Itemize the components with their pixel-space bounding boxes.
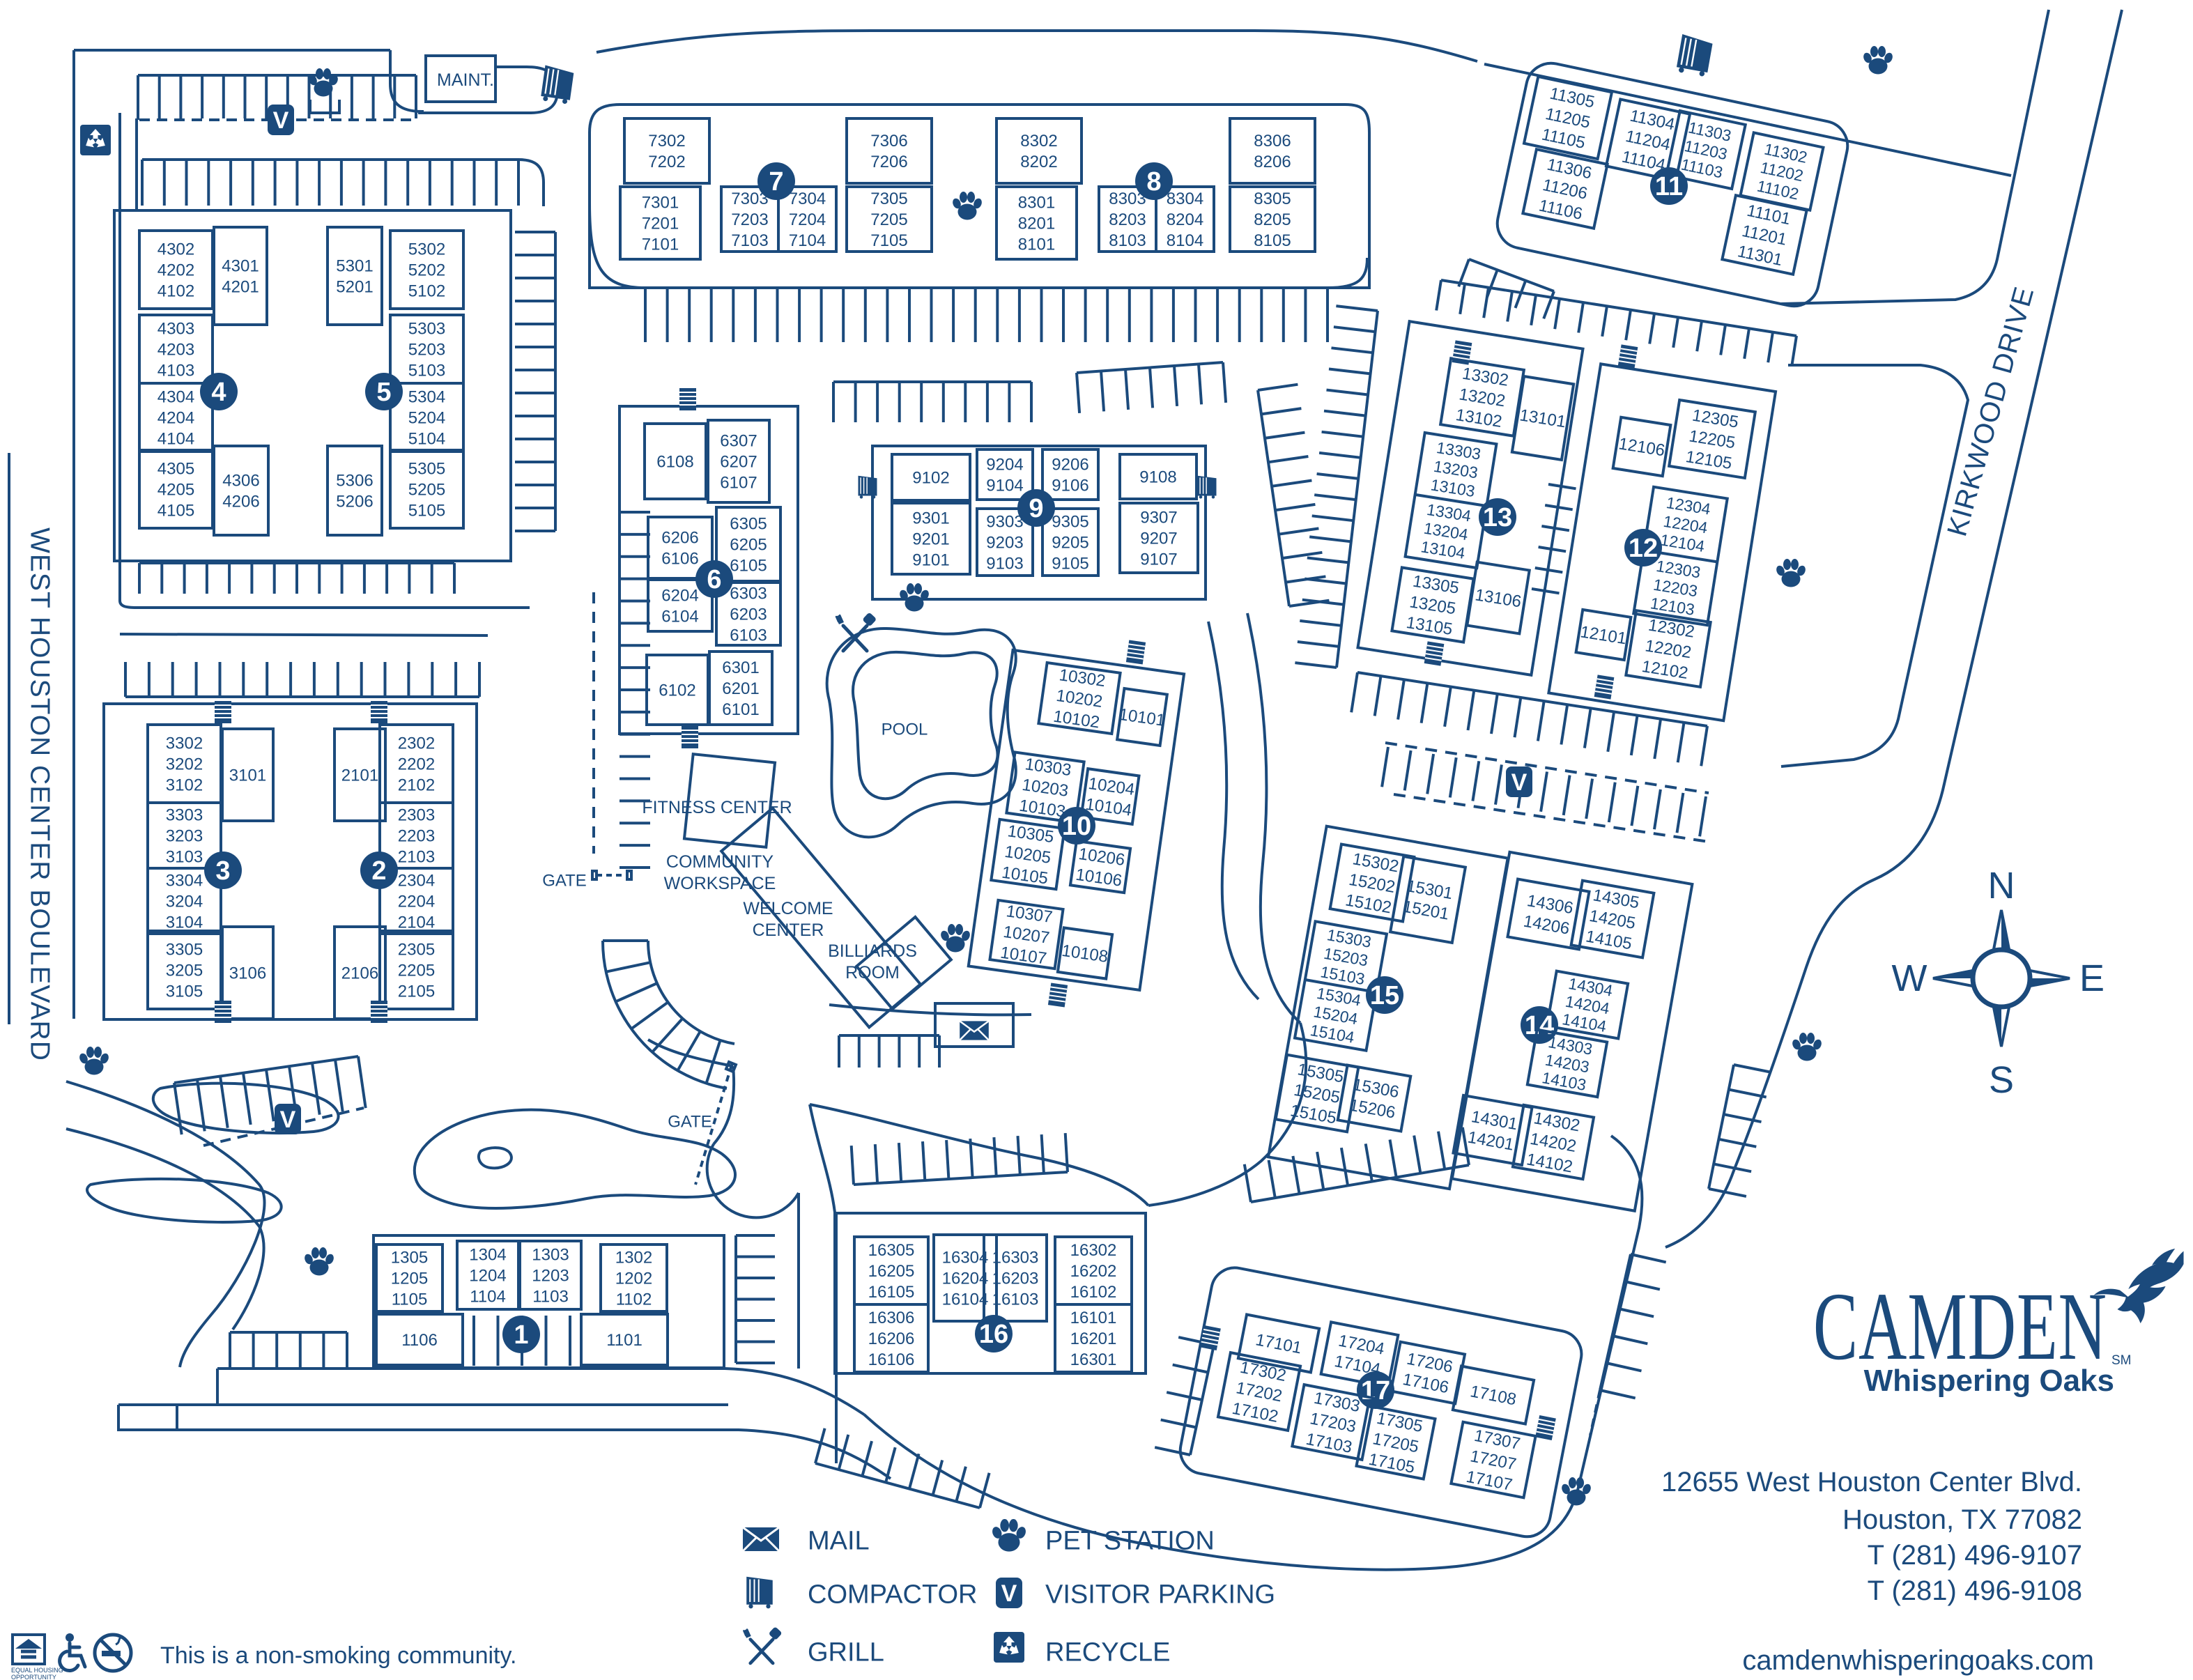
svg-text:330332033103: 330332033103 [166, 806, 203, 866]
svg-text:9108: 9108 [1139, 468, 1176, 486]
svg-text:WEST HOUSTON CENTER BOULEVARD: WEST HOUSTON CENTER BOULEVARD [24, 527, 54, 1061]
svg-text:123051220512105: 123051220512105 [1684, 406, 1740, 473]
svg-text:123021220212102: 123021220212102 [1640, 616, 1696, 683]
svg-text:330232023102: 330232023102 [166, 734, 203, 794]
svg-text:9: 9 [1029, 494, 1043, 523]
svg-text:2101: 2101 [341, 766, 378, 785]
svg-text:103021020210102: 103021020210102 [1052, 665, 1107, 732]
svg-text:7: 7 [769, 167, 783, 196]
svg-text:163061620616106: 163061620616106 [868, 1309, 915, 1369]
svg-text:13: 13 [1483, 503, 1512, 532]
svg-text:VISITOR PARKING: VISITOR PARKING [1045, 1580, 1275, 1609]
svg-text:430242024102: 430242024102 [157, 240, 194, 300]
svg-text:730572057105: 730572057105 [870, 190, 907, 250]
svg-text:163041620416104: 163041620416104 [942, 1248, 989, 1309]
svg-text:530552055105: 530552055105 [408, 459, 445, 520]
svg-text:930392039103: 930392039103 [986, 512, 1023, 573]
svg-text:16: 16 [979, 1320, 1008, 1349]
svg-text:9102: 9102 [912, 468, 949, 487]
svg-text:630762076107: 630762076107 [720, 431, 757, 492]
svg-text:V: V [273, 107, 289, 134]
svg-text:930192019101: 930192019101 [912, 509, 949, 569]
svg-text:S: S [1989, 1059, 2014, 1101]
svg-text:2106: 2106 [341, 964, 378, 982]
svg-text:FITNESS CENTER: FITNESS CENTER [642, 798, 792, 817]
svg-text:EQUAL HOUSING: EQUAL HOUSING [11, 1667, 63, 1674]
svg-text:730472047104: 730472047104 [789, 190, 826, 250]
svg-text:RECYCLE: RECYCLE [1045, 1637, 1171, 1667]
svg-text:POOL: POOL [882, 720, 928, 739]
svg-text:153031520315103: 153031520315103 [1319, 925, 1373, 988]
svg-text:161011620116301: 161011620116301 [1070, 1309, 1117, 1369]
svg-text:133031320313103: 133031320313103 [1429, 438, 1482, 500]
svg-text:8: 8 [1146, 167, 1161, 196]
svg-text:1106: 1106 [401, 1331, 438, 1350]
svg-text:15: 15 [1370, 981, 1399, 1010]
svg-text:4: 4 [211, 378, 226, 407]
svg-text:430542054105: 430542054105 [157, 459, 194, 520]
svg-text:V: V [1001, 1580, 1017, 1607]
svg-text:This is a non-smoking communit: This is a non-smoking community. [160, 1642, 516, 1669]
svg-text:MAINT.: MAINT. [437, 70, 494, 90]
svg-text:6108: 6108 [656, 452, 693, 471]
svg-text:GATE: GATE [668, 1112, 712, 1131]
svg-text:163021620216102: 163021620216102 [1070, 1241, 1117, 1302]
svg-text:330432043104: 330432043104 [166, 871, 203, 932]
svg-text:530352035103: 530352035103 [408, 319, 445, 380]
svg-text:130212021102: 130212021102 [615, 1248, 652, 1309]
svg-text:430442044104: 430442044104 [157, 387, 194, 448]
svg-text:GATE: GATE [542, 871, 587, 890]
svg-text:Houston, TX 77082: Houston, TX 77082 [1842, 1504, 2082, 1535]
svg-text:630562056105: 630562056105 [730, 514, 767, 575]
svg-text:10: 10 [1062, 812, 1091, 841]
svg-text:W: W [1892, 957, 1927, 999]
svg-text:6: 6 [707, 565, 721, 594]
svg-text:130512051105: 130512051105 [391, 1248, 428, 1309]
svg-text:17: 17 [1361, 1376, 1390, 1405]
svg-text:163051620516105: 163051620516105 [868, 1241, 915, 1302]
svg-text:MAIL: MAIL [808, 1526, 870, 1555]
svg-text:143031420314103: 143031420314103 [1541, 1033, 1594, 1094]
svg-text:12655 West Houston Center Blvd: 12655 West Houston Center Blvd. [1661, 1467, 2082, 1497]
svg-text:T (281) 496-9108: T (281) 496-9108 [1868, 1575, 2082, 1606]
svg-text:E: E [2079, 957, 2104, 999]
svg-text:230322032103: 230322032103 [398, 806, 435, 866]
svg-text:133041320413104: 133041320413104 [1419, 500, 1472, 562]
svg-text:143041420414104: 143041420414104 [1561, 974, 1615, 1035]
svg-text:930592059105: 930592059105 [1052, 512, 1088, 573]
svg-text:130412041104: 130412041104 [469, 1245, 506, 1306]
svg-text:1101: 1101 [606, 1331, 642, 1350]
svg-text:123041220412104: 123041220412104 [1659, 493, 1712, 555]
svg-text:830582058105: 830582058105 [1254, 190, 1291, 250]
svg-text:630362036103: 630362036103 [730, 584, 767, 645]
svg-text:OPPORTUNITY: OPPORTUNITY [11, 1674, 56, 1680]
svg-text:11: 11 [1655, 172, 1683, 201]
svg-text:630162016101: 630162016101 [722, 658, 759, 719]
svg-text:330532053105: 330532053105 [166, 940, 203, 1001]
svg-text:730372037103: 730372037103 [731, 190, 768, 250]
svg-text:830182018101: 830182018101 [1018, 193, 1055, 254]
svg-text:730172017101: 730172017101 [642, 193, 679, 254]
svg-text:103051020510105: 103051020510105 [1001, 822, 1055, 888]
svg-text:camdenwhisperingoaks.com: camdenwhisperingoaks.com [1742, 1645, 2094, 1676]
svg-text:COMPACTOR: COMPACTOR [808, 1580, 978, 1609]
svg-text:V: V [280, 1107, 296, 1133]
svg-text:123031220312103: 123031220312103 [1649, 557, 1702, 619]
svg-text:3101: 3101 [229, 766, 266, 785]
svg-text:2: 2 [371, 856, 386, 886]
svg-text:130312031103: 130312031103 [532, 1245, 569, 1306]
svg-text:5: 5 [376, 378, 391, 407]
svg-text:163031620316103: 163031620316103 [992, 1248, 1039, 1309]
svg-text:230522052105: 230522052105 [398, 940, 435, 1001]
svg-text:GRILL: GRILL [808, 1637, 884, 1667]
svg-text:530252025102: 530252025102 [408, 240, 445, 300]
svg-text:V: V [1511, 769, 1528, 796]
svg-text:103071020710107: 103071020710107 [999, 902, 1054, 968]
svg-text:430342034103: 430342034103 [157, 319, 194, 380]
svg-text:133051320513105: 133051320513105 [1405, 572, 1461, 639]
svg-text:T (281) 496-9107: T (281) 496-9107 [1868, 1540, 2082, 1571]
svg-text:N: N [1988, 865, 2015, 907]
svg-text:830382038103: 830382038103 [1109, 190, 1146, 250]
svg-text:SM: SM [2111, 1353, 2132, 1368]
svg-text:133021320213102: 133021320213102 [1454, 364, 1510, 431]
svg-text:930792079107: 930792079107 [1140, 508, 1177, 569]
svg-text:6102: 6102 [659, 681, 695, 700]
svg-text:230222022102: 230222022102 [398, 734, 435, 794]
svg-text:1: 1 [514, 1320, 528, 1350]
svg-text:PET STATION: PET STATION [1045, 1526, 1215, 1555]
svg-text:830482048104: 830482048104 [1167, 190, 1203, 250]
svg-text:3106: 3106 [229, 964, 266, 982]
svg-text:230422042104: 230422042104 [398, 871, 435, 932]
svg-text:3: 3 [215, 856, 230, 886]
svg-text:Whispering Oaks: Whispering Oaks [1864, 1364, 2114, 1398]
svg-text:12: 12 [1629, 534, 1658, 563]
svg-text:530452045104: 530452045104 [408, 387, 445, 448]
